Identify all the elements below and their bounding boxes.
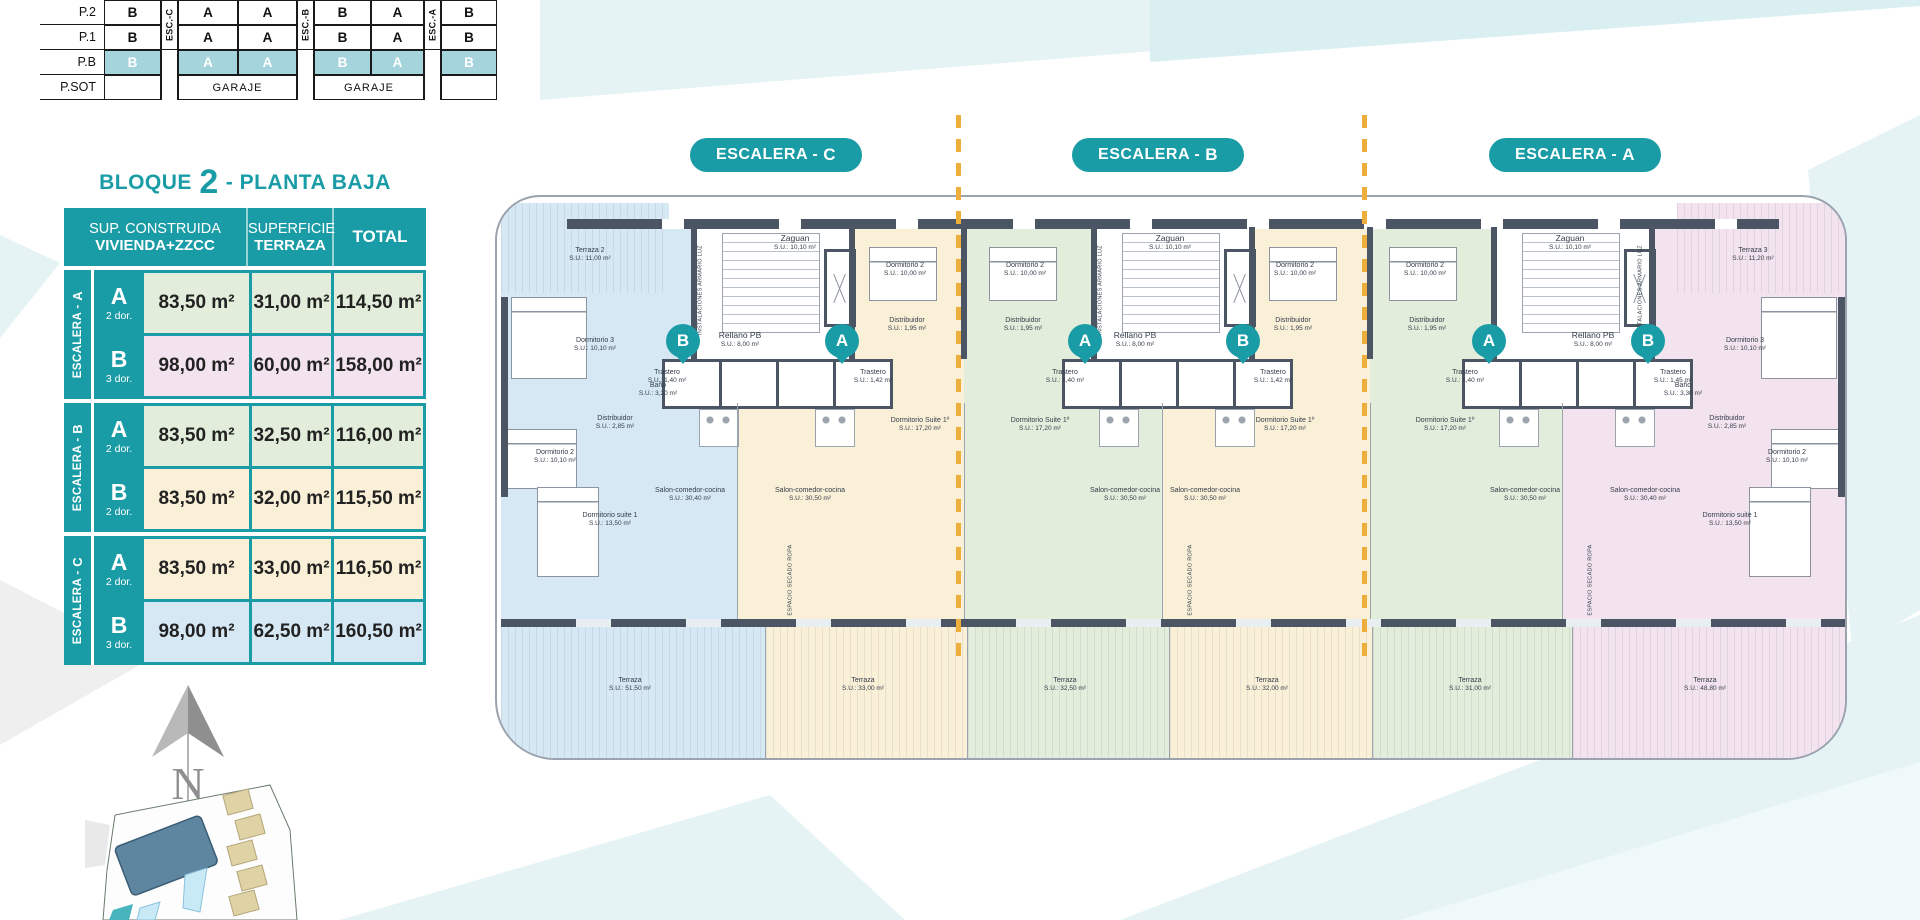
kitchen-icon — [1215, 409, 1255, 447]
stair-column-gap — [424, 50, 441, 75]
room-label: ESPACIO SECADO ROPA — [1187, 544, 1194, 615]
unit-cell-highlight: A — [371, 50, 424, 75]
room-label: TerrazaS.U.: 31,00 m² — [1449, 676, 1491, 694]
unit-cell-highlight: B — [314, 50, 371, 75]
unit-cell: B — [314, 0, 371, 25]
table-row: B 2 dor. 83,50 m² 32,00 m² 115,50 m² — [94, 469, 426, 532]
stair-column-label: ESC.-A — [424, 0, 441, 50]
unit-badge: B 2 dor. — [97, 469, 141, 529]
garage-cell: GARAJE — [178, 75, 297, 100]
room-label: Terraza 2S.U.: 11,00 m² — [569, 246, 610, 264]
floor-plan: Terraza 2S.U.: 11,00 m²Dormitorio 3S.U.:… — [495, 195, 1847, 760]
group-escalera-c: ESCALERA - C A 2 dor. 83,50 m² 33,00 m² … — [64, 536, 426, 665]
room-label: DistribuidorS.U.: 2,85 m² — [1708, 414, 1746, 432]
room-label: TrasteroS.U.: 1,42 m² — [854, 368, 892, 386]
unit-cell: B — [104, 25, 161, 50]
room-label: ZaguanS.U.: 10,10 m² — [1149, 233, 1191, 253]
room-label: Dormitorio 3S.U.: 10,10 m² — [574, 336, 616, 354]
unit-cell: B — [441, 25, 497, 50]
header-total-label: TOTAL — [334, 227, 426, 247]
site-plan — [85, 760, 335, 920]
built-area: 98,00 m² — [141, 602, 249, 662]
wall-line — [1370, 403, 1371, 619]
exterior-wall — [501, 297, 508, 497]
room-label: BañoS.U.: 3,30 m² — [1664, 381, 1702, 399]
unit-cell-highlight: A — [178, 50, 238, 75]
total-area: 115,50 m² — [331, 469, 423, 529]
total-area: 158,00 m² — [331, 336, 423, 396]
table-row: A 2 dor. 83,50 m² 33,00 m² 116,50 m² — [94, 536, 426, 602]
room-label: ESPACIO SECADO ROPA — [787, 544, 794, 615]
room-label: TrasteroS.U.: 1,40 m² — [1446, 368, 1484, 386]
built-area: 83,50 m² — [141, 273, 249, 333]
room-label: Dormitorio 2S.U.: 10,00 m² — [1274, 261, 1316, 279]
room-label: Dormitorio 2S.U.: 10,00 m² — [1004, 261, 1046, 279]
stair-column-gap — [424, 75, 441, 100]
built-area: 83,50 m² — [141, 539, 249, 599]
room-label: TerrazaS.U.: 32,50 m² — [1044, 676, 1086, 694]
stair-column-label: ESC.-C — [161, 0, 178, 50]
room-label: TerrazaS.U.: 33,00 m² — [842, 676, 884, 694]
wall-line — [964, 403, 965, 619]
bed-icon — [1749, 487, 1811, 577]
stair-column-gap — [161, 75, 178, 100]
compass-arrow-right — [188, 685, 224, 757]
room-label: Dormitorio 2S.U.: 10,00 m² — [884, 261, 926, 279]
unit-cell: A — [178, 25, 238, 50]
floor-stack-table: P.2 P.1 P.B P.SOT B A A B A B B A A B A … — [40, 0, 497, 100]
unit-cell-highlight: A — [238, 50, 297, 75]
window-wall — [501, 619, 1845, 627]
pill-escalera-a: ESCALERA -A — [1489, 138, 1661, 172]
garage-cell: GARAJE — [314, 75, 424, 100]
room-label: Salon-comedor-cocinaS.U.: 30,40 m² — [655, 486, 725, 504]
room-label: TerrazaS.U.: 32,00 m² — [1246, 676, 1288, 694]
stair-column-gap — [297, 75, 314, 100]
floor-label: P.2 — [40, 0, 104, 25]
areas-table-header: SUP. CONSTRUIDA VIVIENDA+ZZCC SUPERFICIE… — [64, 208, 426, 266]
unit-pin-badge: A — [1068, 324, 1102, 358]
pill-text: ESCALERA - — [1098, 146, 1200, 164]
total-area: 160,50 m² — [331, 602, 423, 662]
built-area: 98,00 m² — [141, 336, 249, 396]
room-label: Dormitorio 3S.U.: 10,10 m² — [1724, 336, 1766, 354]
header-terrace-line2: TERRAZA — [248, 237, 332, 254]
room-label: DistribuidorS.U.: 1,95 m² — [1274, 316, 1312, 334]
room-label: INSTALACIONES ARMARIO LUZ — [1097, 245, 1104, 335]
room-label: Dormitorio suite 1S.U.: 13,50 m² — [583, 511, 638, 529]
kitchen-icon — [1615, 409, 1655, 447]
terrace-area: 32,00 m² — [249, 469, 331, 529]
room-label: ZaguanS.U.: 10,10 m² — [1549, 233, 1591, 253]
stair-column-label: ESC.-B — [297, 0, 314, 50]
table-row: A 2 dor. 83,50 m² 32,50 m² 116,00 m² — [94, 403, 426, 469]
group-escalera-b: ESCALERA - B A 2 dor. 83,50 m² 32,50 m² … — [64, 403, 426, 532]
unit-pin-badge: B — [666, 324, 700, 358]
kitchen-icon — [1099, 409, 1139, 447]
stair-column-gap — [161, 50, 178, 75]
table-row: B 3 dor. 98,00 m² 60,00 m² 158,00 m² — [94, 336, 426, 399]
header-built: SUP. CONSTRUIDA VIVIENDA+ZZCC — [64, 208, 246, 266]
room-label: Terraza 3S.U.: 11,20 m² — [1732, 246, 1773, 264]
unit-pin-badge: B — [1631, 324, 1665, 358]
room-label: ESPACIO SECADO ROPA — [1587, 544, 1594, 615]
terrace-area: 32,50 m² — [249, 406, 331, 466]
built-area: 83,50 m² — [141, 406, 249, 466]
header-terrace: SUPERFICIE TERRAZA — [246, 208, 332, 266]
floor-label: P.B — [40, 50, 104, 75]
areas-table: BLOQUE 2 - PLANTA BAJA SUP. CONSTRUIDA V… — [64, 163, 426, 665]
section-divider-dashed — [956, 115, 961, 660]
party-wall — [1367, 227, 1373, 359]
room-label: Dormitorio 2S.U.: 10,00 m² — [1404, 261, 1446, 279]
group-label: ESCALERA - C — [64, 536, 94, 665]
group-escalera-a: ESCALERA - A A 2 dor. 83,50 m² 31,00 m² … — [64, 270, 426, 399]
room-label: TerrazaS.U.: 48,80 m² — [1684, 676, 1726, 694]
table-row: A 2 dor. 83,50 m² 31,00 m² 114,50 m² — [94, 270, 426, 336]
unit-cell-highlight: B — [104, 50, 161, 75]
section-divider-dashed — [1362, 115, 1367, 660]
kitchen-icon — [1499, 409, 1539, 447]
stair-column-gap — [297, 50, 314, 75]
compass-arrow-left — [152, 685, 188, 757]
room-label: Salon-comedor-cocinaS.U.: 30,50 m² — [775, 486, 845, 504]
room-label: Rellano PBS.U.: 8,00 m² — [1572, 330, 1615, 350]
room-label: DistribuidorS.U.: 1,95 m² — [888, 316, 926, 334]
unit-badge: B 3 dor. — [97, 602, 141, 662]
pill-text: ESCALERA - — [716, 146, 818, 164]
room-label: Dormitorio Suite 1ºS.U.: 17,20 m² — [891, 416, 950, 434]
pill-letter: B — [1205, 145, 1218, 165]
unit-cell: B — [441, 0, 497, 25]
total-area: 114,50 m² — [331, 273, 423, 333]
room-label: Rellano PBS.U.: 8,00 m² — [1114, 330, 1157, 350]
title-suffix: - PLANTA BAJA — [226, 171, 391, 194]
header-terrace-line1: SUPERFICIE — [248, 221, 332, 237]
terrace-area: 60,00 m² — [249, 336, 331, 396]
wall-line — [1562, 403, 1563, 619]
title-prefix: BLOQUE — [99, 171, 192, 194]
room-label: DistribuidorS.U.: 1,95 m² — [1004, 316, 1042, 334]
group-label: ESCALERA - A — [64, 270, 94, 399]
room-label: DistribuidorS.U.: 2,85 m² — [596, 414, 634, 432]
room-label: Dormitorio suite 1S.U.: 13,50 m² — [1703, 511, 1758, 529]
bed-icon — [1761, 297, 1837, 379]
pill-escalera-b: ESCALERA -B — [1072, 138, 1244, 172]
room-label: Dormitorio Suite 1ºS.U.: 17,20 m² — [1256, 416, 1315, 434]
pill-letter: C — [823, 145, 836, 165]
pill-letter: A — [1622, 145, 1635, 165]
wall-line — [737, 403, 738, 619]
unit-cell-highlight: B — [441, 50, 497, 75]
total-area: 116,50 m² — [331, 539, 423, 599]
pill-escalera-c: ESCALERA -C — [690, 138, 862, 172]
room-label: Salon-comedor-cocinaS.U.: 30,50 m² — [1090, 486, 1160, 504]
unit-badge: A 2 dor. — [97, 539, 141, 599]
party-wall — [961, 227, 967, 359]
header-built-line1: SUP. CONSTRUIDA — [64, 221, 246, 237]
header-built-line2: VIVIENDA+ZZCC — [64, 237, 246, 254]
neighbor-parcel — [85, 820, 110, 868]
room-label: TrasteroS.U.: 1,40 m² — [1046, 368, 1084, 386]
unit-badge: A 2 dor. — [97, 406, 141, 466]
room-label: Dormitorio 2S.U.: 10,10 m² — [1766, 448, 1808, 466]
pill-text: ESCALERA - — [1515, 146, 1617, 164]
exterior-wall — [1838, 297, 1845, 497]
terrace-area: 31,00 m² — [249, 273, 331, 333]
terrace-area: 62,50 m² — [249, 602, 331, 662]
unit-cell: A — [238, 0, 297, 25]
room-label: Salon-comedor-cocinaS.U.: 30,50 m² — [1170, 486, 1240, 504]
room-label: Salon-comedor-cocinaS.U.: 30,40 m² — [1610, 486, 1680, 504]
room-label: INSTALACIONES ARMARIO LUZ — [1637, 245, 1644, 335]
unit-cell: B — [314, 25, 371, 50]
page-title: BLOQUE 2 - PLANTA BAJA — [64, 163, 426, 202]
unit-cell: A — [371, 25, 424, 50]
table-row: B 3 dor. 98,00 m² 62,50 m² 160,50 m² — [94, 602, 426, 665]
room-label: TrasteroS.U.: 1,42 m² — [1254, 368, 1292, 386]
floor-label: P.1 — [40, 25, 104, 50]
room-label: Dormitorio 2S.U.: 10,10 m² — [534, 448, 576, 466]
unit-badge: B 3 dor. — [97, 336, 141, 396]
unit-badge: A 2 dor. — [97, 273, 141, 333]
room-label: Dormitorio Suite 1ºS.U.: 17,20 m² — [1011, 416, 1070, 434]
total-area: 116,00 m² — [331, 406, 423, 466]
unit-cell: A — [178, 0, 238, 25]
room-label: TerrazaS.U.: 51,50 m² — [609, 676, 651, 694]
room-label: TrasteroS.U.: 1,40 m² — [648, 368, 686, 386]
unit-cell: A — [371, 0, 424, 25]
wall-line — [1162, 403, 1163, 619]
kitchen-icon — [815, 409, 855, 447]
kitchen-icon — [699, 409, 739, 447]
title-block-number: 2 — [199, 163, 218, 201]
room-label: Rellano PBS.U.: 8,00 m² — [719, 330, 762, 350]
unit-pin-badge: A — [1472, 324, 1506, 358]
unit-pin-badge: A — [825, 324, 859, 358]
unit-pin-badge: B — [1226, 324, 1260, 358]
room-label: Dormitorio Suite 1ºS.U.: 17,20 m² — [1416, 416, 1475, 434]
terrace-area: 33,00 m² — [249, 539, 331, 599]
exterior-wall — [567, 219, 1779, 229]
empty-cell — [104, 75, 161, 100]
built-area: 83,50 m² — [141, 469, 249, 529]
room-label: INSTALACIONES ARMARIO LUZ — [697, 245, 704, 335]
empty-cell — [441, 75, 497, 100]
bed-icon — [537, 487, 599, 577]
floor-label: P.SOT — [40, 75, 104, 100]
room-label: DistribuidorS.U.: 1,95 m² — [1408, 316, 1446, 334]
unit-cell: B — [104, 0, 161, 25]
room-label: ZaguanS.U.: 10,10 m² — [774, 233, 816, 253]
room-label: Salon-comedor-cocinaS.U.: 30,50 m² — [1490, 486, 1560, 504]
header-total: TOTAL — [332, 208, 426, 266]
unit-cell: A — [238, 25, 297, 50]
group-label: ESCALERA - B — [64, 403, 94, 532]
